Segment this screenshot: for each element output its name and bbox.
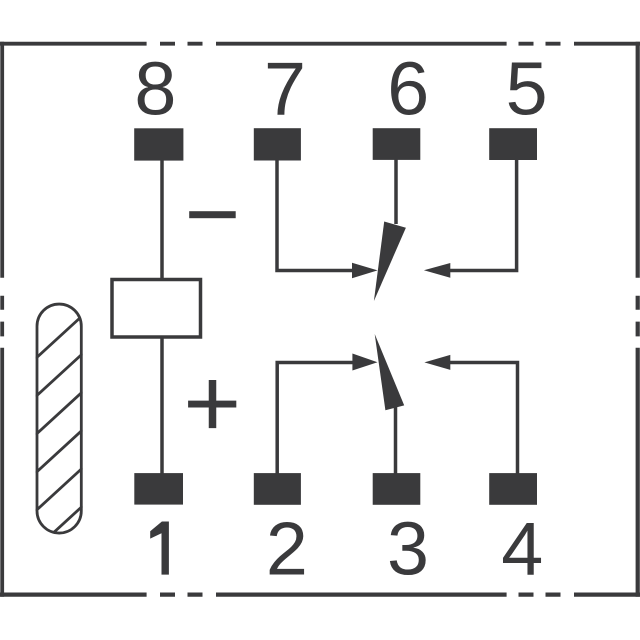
- svg-text:6: 6: [387, 46, 429, 130]
- svg-text:7: 7: [264, 46, 306, 130]
- svg-text:3: 3: [387, 507, 429, 591]
- svg-text:8: 8: [134, 46, 176, 130]
- svg-text:2: 2: [266, 507, 308, 591]
- svg-text:5: 5: [506, 46, 548, 130]
- svg-text:4: 4: [501, 507, 543, 591]
